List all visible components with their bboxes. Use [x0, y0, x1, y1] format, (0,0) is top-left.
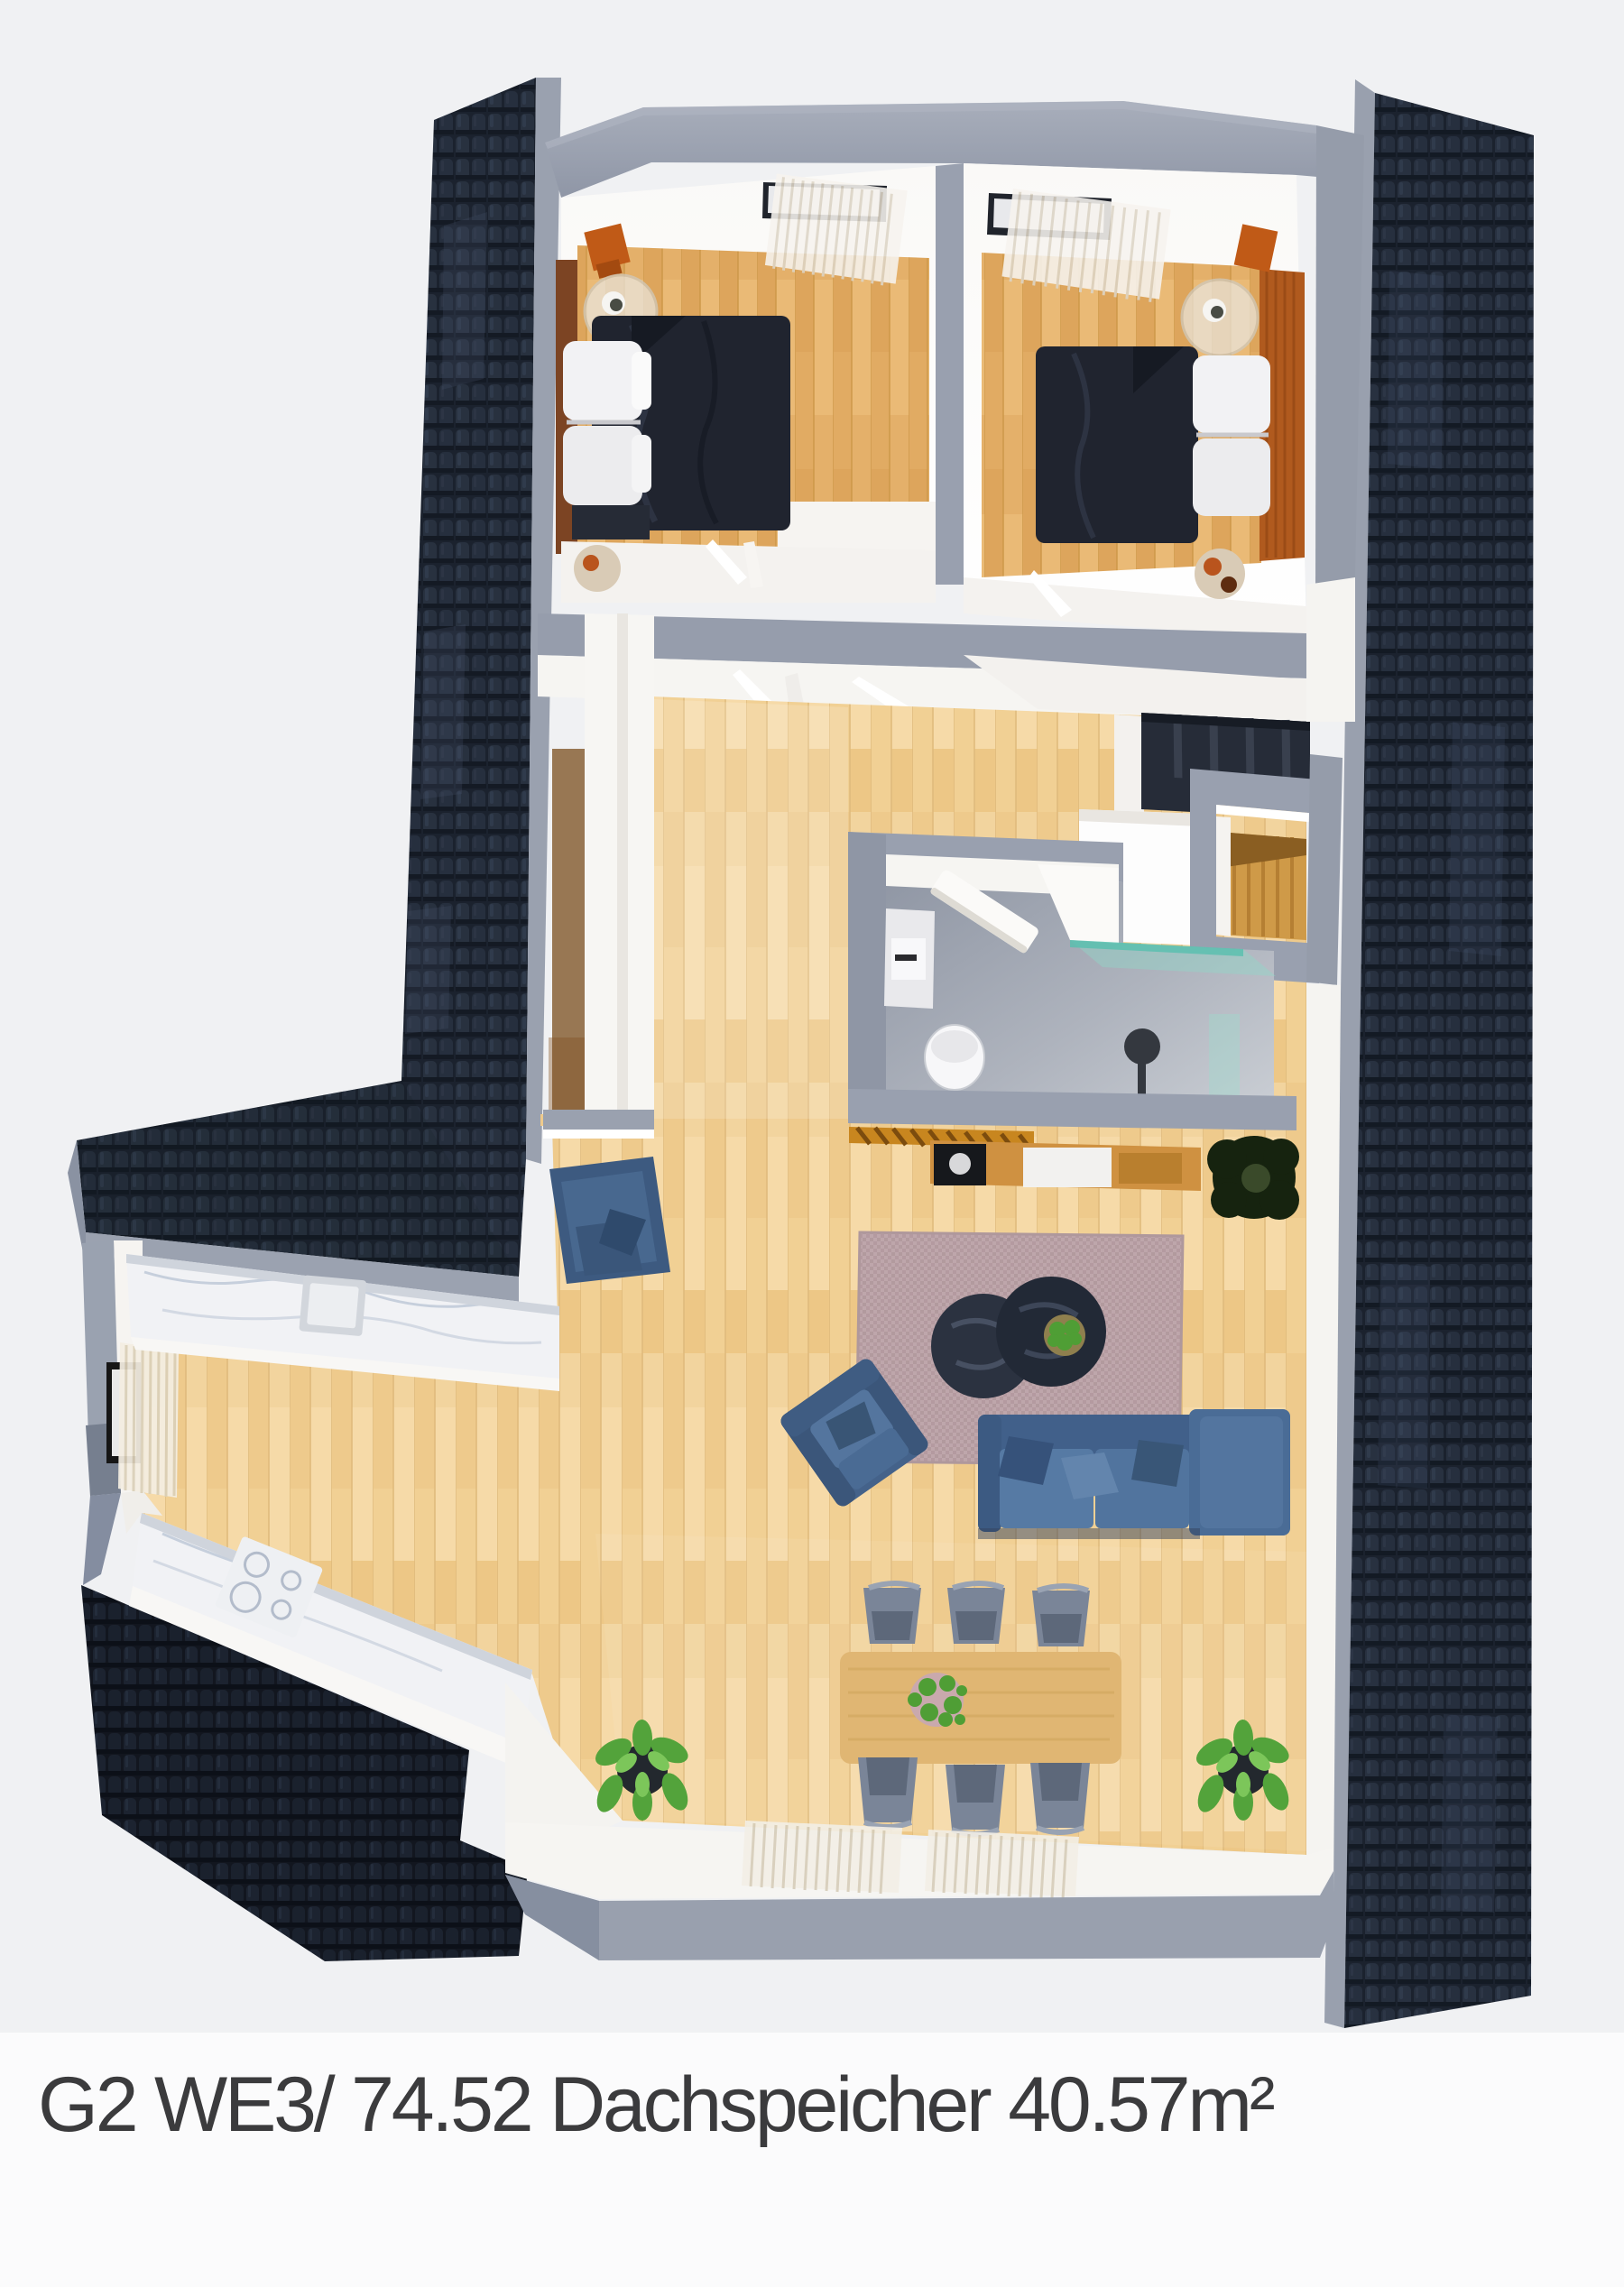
svg-text:G2 WE3/ 74.52 Dachspeicher 40.: G2 WE3/ 74.52 Dachspeicher 40.57m²: [38, 2061, 1274, 2148]
